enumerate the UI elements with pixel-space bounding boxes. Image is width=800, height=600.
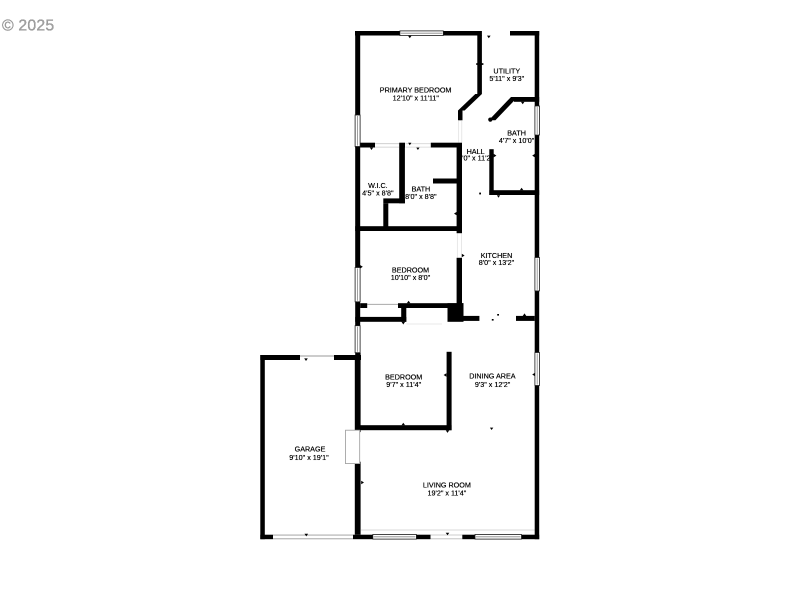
svg-text:9'3" x 12'2": 9'3" x 12'2" — [475, 380, 511, 389]
svg-text:4'0" x 11'2": 4'0" x 11'2" — [458, 154, 493, 163]
svg-text:4'7" x 10'0": 4'7" x 10'0" — [499, 136, 535, 145]
svg-text:4'5" x 8'8": 4'5" x 8'8" — [362, 189, 394, 198]
svg-text:10'10" x 8'0": 10'10" x 8'0" — [391, 273, 431, 282]
svg-text:9'10" x 19'1": 9'10" x 19'1" — [289, 453, 329, 462]
svg-text:19'2" x 11'4": 19'2" x 11'4" — [427, 489, 466, 498]
svg-text:9'7" x 11'4": 9'7" x 11'4" — [386, 380, 421, 389]
svg-text:8'0" x 8'8": 8'0" x 8'8" — [405, 192, 437, 201]
svg-text:12'10" x 11'11": 12'10" x 11'11" — [393, 94, 440, 103]
svg-text:© 2025: © 2025 — [2, 18, 54, 35]
svg-text:8'0" x 13'2": 8'0" x 13'2" — [479, 258, 515, 267]
svg-text:5'11" x 9'3": 5'11" x 9'3" — [489, 74, 524, 83]
